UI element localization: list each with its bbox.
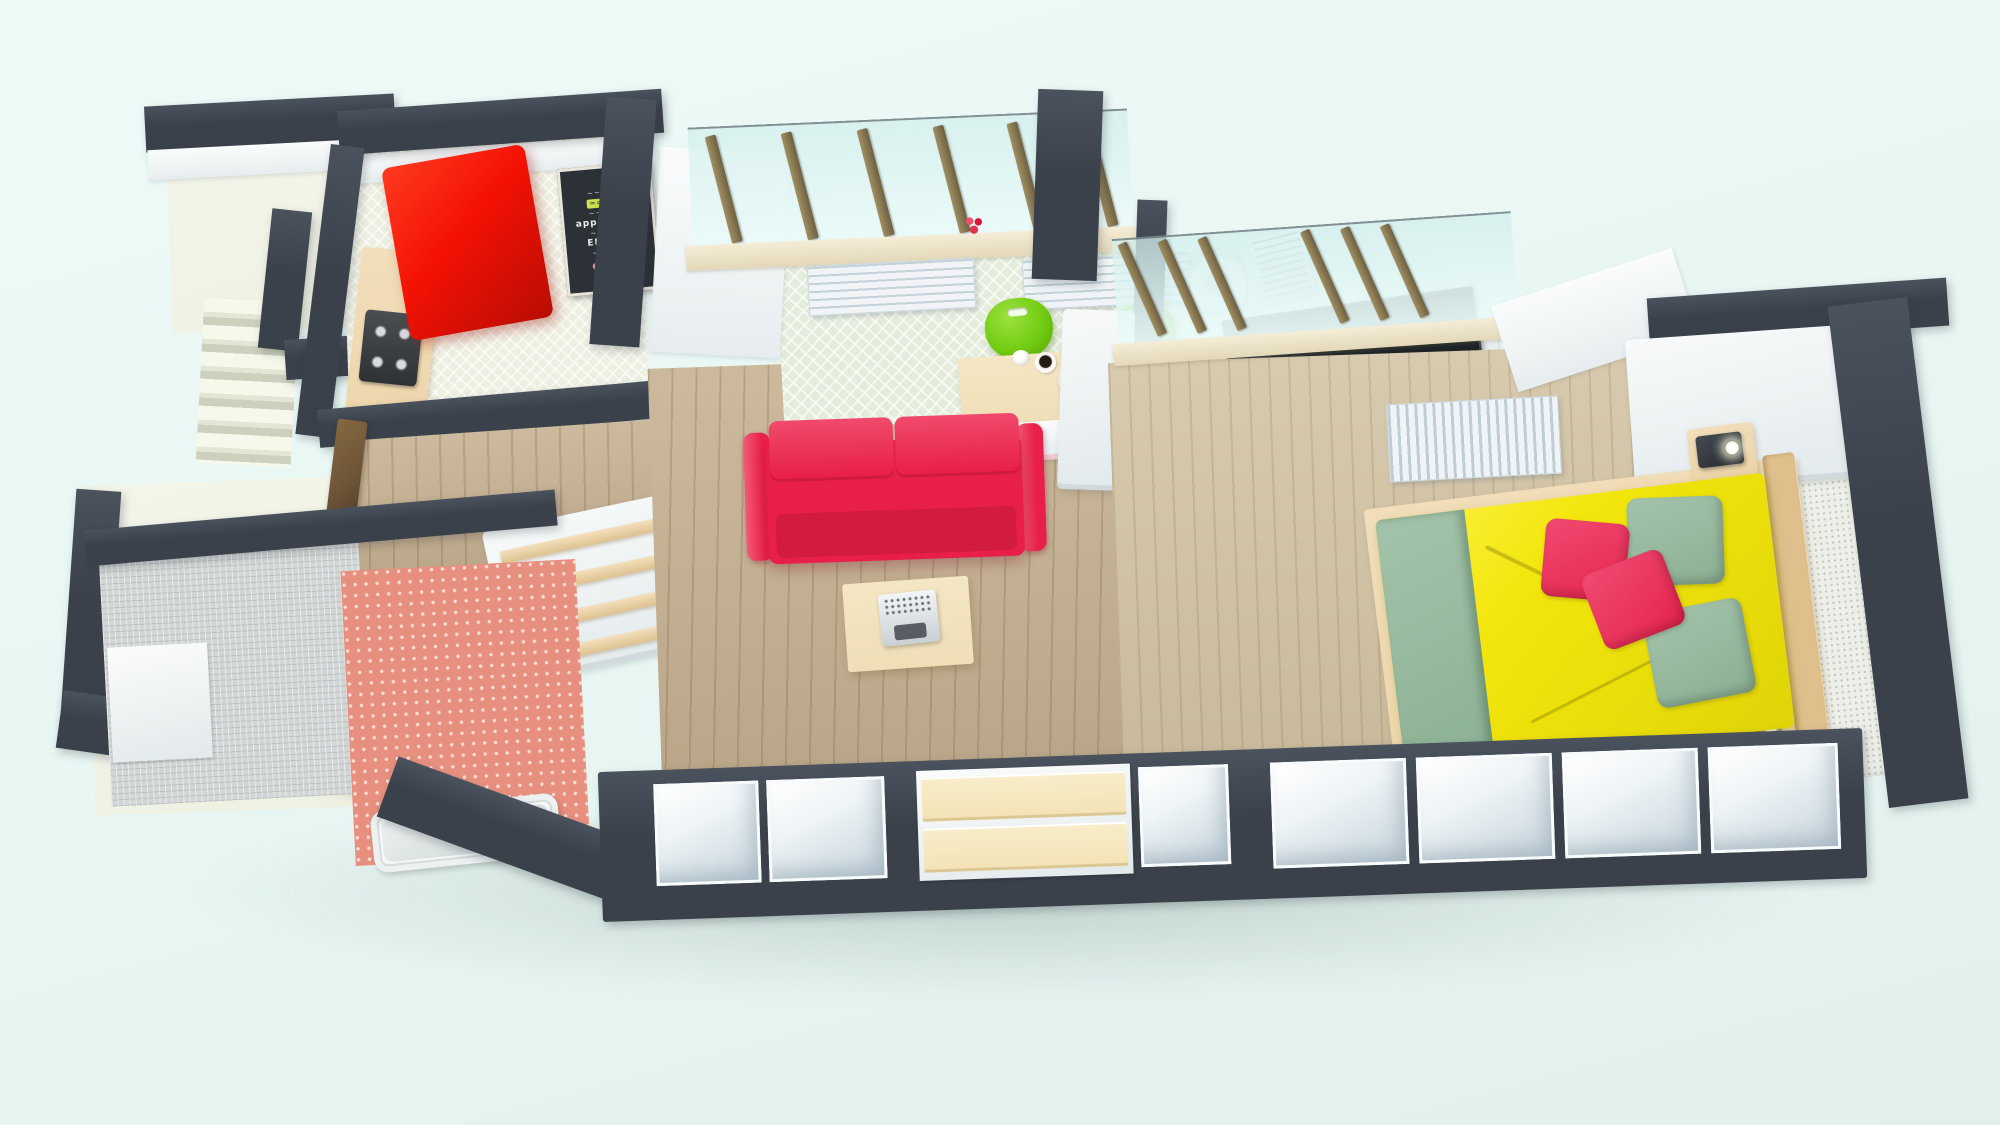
window-mullion <box>1117 241 1167 336</box>
open-closet <box>1138 764 1231 867</box>
window-mullion <box>1157 239 1207 334</box>
coffee-cup <box>1035 352 1056 373</box>
wood-drawer <box>921 771 1126 822</box>
apartment-plan: ~~ ~~~ ===== ~~~ ~~ appleberry ~~ ~~~ ER… <box>50 60 1930 980</box>
typewriter <box>877 589 940 647</box>
open-closet <box>766 776 887 882</box>
sofa-back-cushion <box>894 413 1020 475</box>
window-mullion <box>1197 236 1247 331</box>
window-mullion <box>1380 223 1430 318</box>
living-top-right-column <box>1032 89 1104 281</box>
window-mullion <box>705 135 743 244</box>
sofa-seat-cushion <box>776 506 1017 558</box>
open-closet <box>1562 748 1702 859</box>
sugar-bowl <box>1012 350 1030 366</box>
open-closet <box>1416 753 1556 864</box>
washing-area <box>107 642 213 762</box>
window-mullion <box>781 131 819 240</box>
window-mullion <box>1300 229 1350 324</box>
windowsill-flower <box>962 212 986 238</box>
open-closet <box>653 781 761 887</box>
wood-drawer <box>923 822 1128 873</box>
window-mullion <box>1340 226 1390 321</box>
open-closet <box>1708 743 1842 853</box>
drawer-unit <box>916 764 1134 881</box>
window-mullion <box>857 128 895 237</box>
nightstand-lamp <box>1695 431 1745 468</box>
red-sofa <box>742 407 1048 582</box>
living-radiator-left <box>807 258 976 317</box>
floor-plan-render: ~~ ~~~ ===== ~~~ ~~ appleberry ~~ ~~~ ER… <box>0 0 2000 1125</box>
sofa-back-cushion <box>768 417 894 479</box>
open-closet <box>1270 758 1410 869</box>
refrigerator <box>381 144 554 342</box>
